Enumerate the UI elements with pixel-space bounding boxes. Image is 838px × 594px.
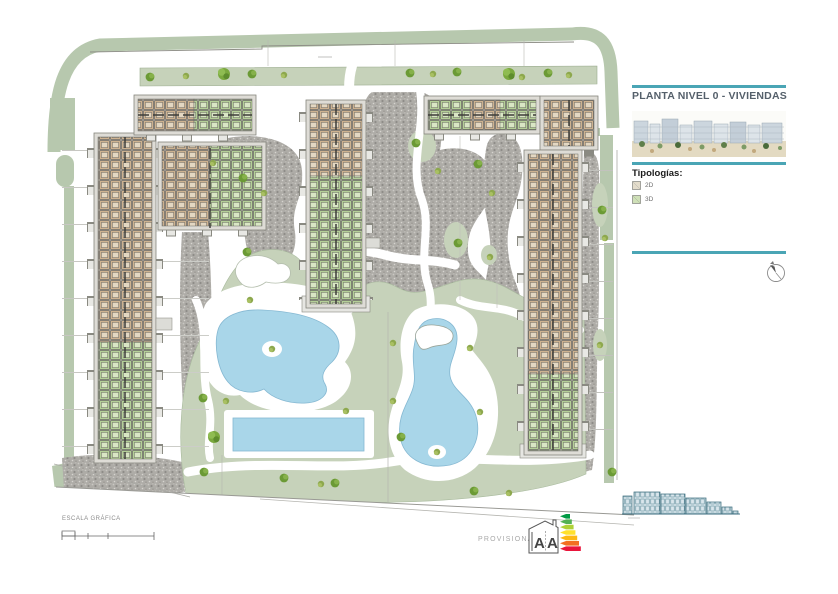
building-topcenter-bar: [424, 96, 540, 137]
legend-item-2d: 2D: [632, 181, 653, 190]
energy-rating-arrows: [560, 514, 581, 551]
building-topright-block: [540, 96, 598, 153]
graphic-scale-bar: [58, 527, 160, 543]
panel-rule-bottom: [632, 251, 786, 254]
scale-label: ESCALA GRÁFICA: [62, 516, 121, 522]
building-topleft-arm: [134, 95, 256, 138]
tipologias-heading: Tipologías:: [632, 168, 683, 179]
energy-certificate-stamp: A A: [522, 512, 584, 558]
panel-rule-top: [632, 85, 786, 88]
project-render-thumbnail: [632, 111, 786, 157]
page-title: PLANTA NIVEL 0 - VIVIENDAS: [632, 90, 802, 102]
lap-pool: [233, 418, 364, 451]
panel-rule-middle: [632, 162, 786, 165]
north-arrow-icon: [762, 256, 790, 286]
energy-letter-left: A: [534, 535, 545, 552]
energy-letter-right: A: [547, 535, 558, 552]
legend-label-3d: 3D: [645, 196, 653, 203]
legend-label-2d: 2D: [645, 182, 653, 189]
legend-swatch-2d: [632, 181, 641, 190]
building-elevation-drawing: [620, 484, 745, 522]
legend-item-3d: 3D: [632, 195, 653, 204]
legend-swatch-3d: [632, 195, 641, 204]
building-right-bar: [520, 150, 586, 458]
site-plan-sheet: PLANTA NIVEL 0 - VIVIENDAS Tipologías: 2…: [0, 0, 838, 594]
building-topleft-block: [158, 142, 266, 233]
